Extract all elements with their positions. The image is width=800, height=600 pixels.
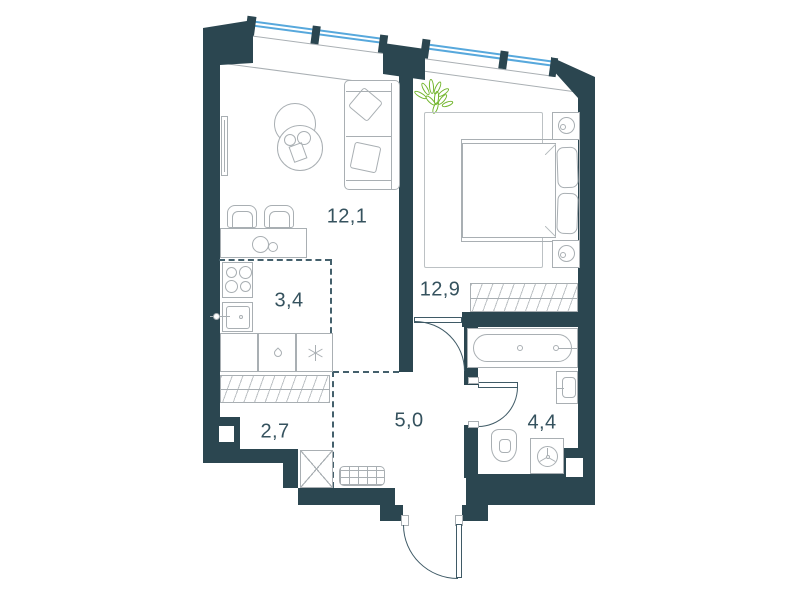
- pillow-icon: [556, 193, 578, 235]
- wall-left: [203, 95, 220, 452]
- pillow-icon: [556, 147, 578, 189]
- living-area-label: 12,1: [327, 206, 368, 229]
- washer-drum-icon: [537, 446, 558, 467]
- faucet-icon: [213, 313, 220, 320]
- wall-step-left: [283, 449, 298, 488]
- kitchen-sink-icon: [222, 302, 253, 332]
- wall-bottom-center: [298, 488, 395, 505]
- bedroom-area-label: 12,9: [420, 279, 461, 302]
- nightstand-icon: [552, 240, 580, 268]
- double-bed-icon: [462, 143, 556, 238]
- wall-corner-top-left: [203, 19, 253, 100]
- wall-niche-bathroom: [566, 458, 583, 477]
- door-jamb: [468, 377, 479, 384]
- bedroom-door-swing: [415, 321, 465, 371]
- sofa-back-line: [391, 83, 392, 189]
- toilet-icon: [491, 429, 517, 462]
- window-glass-line: [423, 47, 556, 67]
- plate-icon: [252, 236, 269, 253]
- kitchen-area-label: 3,4: [274, 290, 303, 313]
- window-band-living: [245, 20, 386, 72]
- kitchen-zone-dash-top: [219, 259, 331, 261]
- tv-icon: [221, 116, 228, 176]
- burner-icon: [226, 267, 237, 278]
- doormat-icon: [339, 466, 385, 486]
- washbasin-icon: [556, 371, 578, 404]
- wall-living-bedroom: [399, 70, 413, 372]
- tap-icon: [556, 388, 564, 389]
- sofa-icon: [344, 80, 400, 190]
- window-mullion: [498, 50, 508, 69]
- chair-icon: [227, 205, 257, 228]
- plate-icon: [268, 242, 278, 252]
- hall-zone-dash-top: [333, 371, 399, 373]
- fridge-icon: [296, 333, 333, 372]
- hatch-midline: [221, 389, 329, 390]
- wall-bathroom-west-lower: [464, 425, 478, 478]
- bedroom-wardrobe-hatch: [470, 283, 578, 312]
- sofa-seat-line: [346, 136, 391, 137]
- hatch-midline: [471, 298, 577, 299]
- drain-icon: [517, 345, 523, 351]
- window-mullion: [310, 25, 320, 44]
- door-jamb: [468, 421, 479, 428]
- washing-machine-icon: [530, 438, 564, 474]
- wall-niche: [219, 426, 234, 442]
- wardrobe-area-label: 2,7: [260, 421, 289, 444]
- cabinet-icon: [220, 333, 258, 372]
- wall-entry-post-left: [380, 505, 403, 521]
- entrance-door-swing: [403, 525, 458, 579]
- sofa-arm-line: [346, 180, 391, 181]
- blanket-fold-icon: [545, 144, 556, 155]
- hallway-area-label: 5,0: [394, 410, 423, 433]
- wall-bedroom-south: [462, 312, 578, 327]
- floor-plan: 12,1 3,4 12,9 2,7 5,0 4,4: [0, 0, 800, 600]
- stove-icon: [222, 262, 253, 298]
- corridor-wardrobe-hatch: [220, 375, 330, 403]
- bathtub-icon: [467, 328, 578, 368]
- bathroom-area-label: 4,4: [527, 412, 556, 435]
- cushion-icon: [348, 87, 383, 122]
- nightstand-icon: [552, 112, 580, 140]
- wall-bathroom-south: [466, 474, 595, 505]
- dishwasher-icon: [258, 333, 296, 372]
- blanket-fold-icon: [545, 226, 556, 237]
- shaft-x-icon: [300, 450, 333, 488]
- bathroom-door-swing: [478, 387, 518, 427]
- burner-icon: [239, 266, 252, 279]
- chair-icon: [264, 205, 294, 228]
- burner-icon: [240, 281, 251, 292]
- dishwasher-drop-icon: [272, 347, 283, 358]
- wall-entry-post-right: [462, 505, 488, 521]
- fridge-snowflake-icon: [307, 345, 323, 361]
- burner-icon: [225, 280, 238, 293]
- cushion-icon: [349, 141, 381, 173]
